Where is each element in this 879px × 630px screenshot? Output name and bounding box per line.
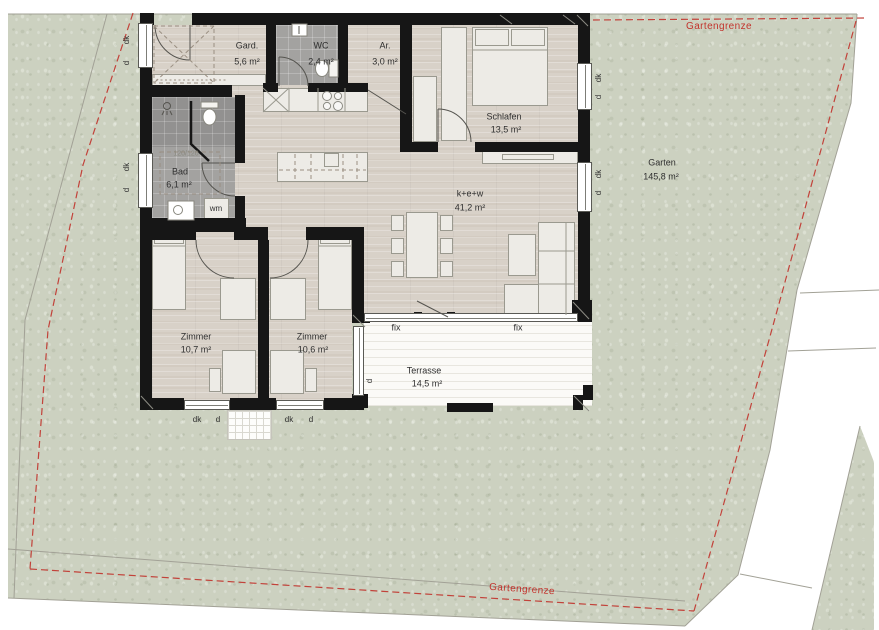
wall — [266, 25, 276, 85]
desk-chair — [209, 368, 221, 392]
room-area-zimmer1: 10,7 m² — [181, 346, 212, 355]
wc-floor — [276, 25, 338, 85]
room-area-gard: 5,6 m² — [234, 58, 260, 67]
pillow — [475, 29, 509, 46]
garden-label: Garten — [648, 159, 676, 168]
window-label-d: d — [123, 188, 131, 192]
entry-grate — [227, 410, 272, 440]
wall — [140, 227, 196, 240]
terrace-step — [447, 403, 493, 412]
room-label-bad: Bad — [172, 168, 188, 177]
wall — [140, 68, 152, 153]
desk-zimmer1 — [222, 350, 256, 394]
wall — [308, 83, 368, 92]
lowboard-detail — [502, 154, 554, 160]
room-area-zimmer2: 10,6 m² — [298, 346, 329, 355]
sofa-chaise — [504, 284, 539, 315]
kitchen-island — [277, 152, 368, 182]
window-bad — [138, 153, 153, 208]
boundary-label-top: Gartengrenze — [686, 22, 752, 32]
room-area-schlafen: 13,5 m² — [491, 126, 522, 135]
window-label-d: d — [216, 416, 220, 424]
wardrobe-zimmer1 — [220, 278, 256, 320]
wall — [263, 83, 278, 92]
room-label-ar: Ar. — [379, 42, 390, 51]
room-area-ar: 3,0 m² — [372, 58, 398, 67]
window-label-dk: dk — [285, 416, 293, 424]
fix-window-label: fix — [392, 324, 401, 333]
fixed-glazing — [364, 313, 578, 322]
desk-zimmer2 — [270, 350, 304, 394]
terrace-door — [353, 326, 364, 396]
shower-floor — [152, 97, 235, 147]
wall — [258, 240, 269, 400]
wall — [152, 85, 232, 97]
bedroom-wardrobe — [441, 27, 467, 141]
sofa — [538, 222, 575, 315]
room-label-wc: WC — [314, 42, 329, 51]
window-label-dk: dk — [123, 163, 131, 171]
chair — [440, 261, 453, 277]
wall — [578, 212, 590, 302]
window-label-d: d — [595, 95, 603, 99]
window-zimmer1 — [184, 400, 230, 410]
room-area-kew: 41,2 m² — [455, 204, 486, 213]
wall — [578, 13, 590, 63]
wall — [338, 25, 348, 85]
dining-table — [406, 212, 438, 278]
wall — [306, 227, 355, 240]
wall — [352, 227, 364, 315]
wall — [234, 227, 268, 240]
window-gard — [138, 23, 153, 68]
window-label-dk: dk — [595, 170, 603, 178]
terrace-deck — [364, 322, 592, 406]
window-living — [577, 162, 592, 212]
room-area-bad: 6,1 m² — [166, 181, 192, 190]
desk-chair — [305, 368, 317, 392]
room-label-terrasse: Terrasse — [407, 367, 442, 376]
garden-area-label: 145,8 m² — [643, 173, 679, 182]
wall — [400, 142, 438, 152]
room-label-gard: Gard. — [236, 42, 259, 51]
wardrobe-zimmer2 — [270, 278, 306, 320]
terrace-corner — [583, 385, 593, 400]
terrace-corner — [573, 395, 583, 410]
shower-size-label: 120/120 — [173, 151, 198, 158]
window-label-dk: dk — [123, 36, 131, 44]
room-label-zimmer1: Zimmer — [181, 333, 212, 342]
island-sink — [324, 153, 339, 167]
wall — [235, 95, 245, 163]
chair — [391, 238, 404, 254]
wall — [230, 398, 276, 410]
wall — [475, 142, 590, 152]
wall — [578, 110, 590, 162]
wall — [140, 398, 184, 410]
room-area-wc: 2,4 m² — [308, 58, 334, 67]
pillow — [511, 29, 545, 46]
coffee-table — [508, 234, 536, 276]
fix-window-label: fix — [514, 324, 523, 333]
washing-machine-label: wm — [210, 205, 222, 213]
window-label-d: d — [309, 416, 313, 424]
window-zimmer2 — [276, 400, 324, 410]
chair — [440, 238, 453, 254]
floor-plan: Gard. 5,6 m² WC 2,4 m² Ar. 3,0 m² Schlaf… — [0, 0, 879, 630]
window-label-d: d — [123, 61, 131, 65]
room-label-zimmer2: Zimmer — [297, 333, 328, 342]
chair — [391, 261, 404, 277]
room-label-schlafen: Schlafen — [486, 113, 521, 122]
room-area-terrasse: 14,5 m² — [412, 380, 443, 389]
chair — [440, 215, 453, 231]
room-label-kew: k+e+w — [457, 190, 484, 199]
window-label-d: d — [366, 379, 374, 383]
chair — [391, 215, 404, 231]
window-schlafen — [577, 63, 592, 110]
hall-closet — [413, 76, 437, 142]
window-label-dk: dk — [193, 416, 201, 424]
wall — [400, 23, 412, 151]
window-label-d: d — [595, 191, 603, 195]
wall — [324, 398, 364, 410]
wall — [192, 13, 590, 25]
window-label-dk: dk — [595, 74, 603, 82]
